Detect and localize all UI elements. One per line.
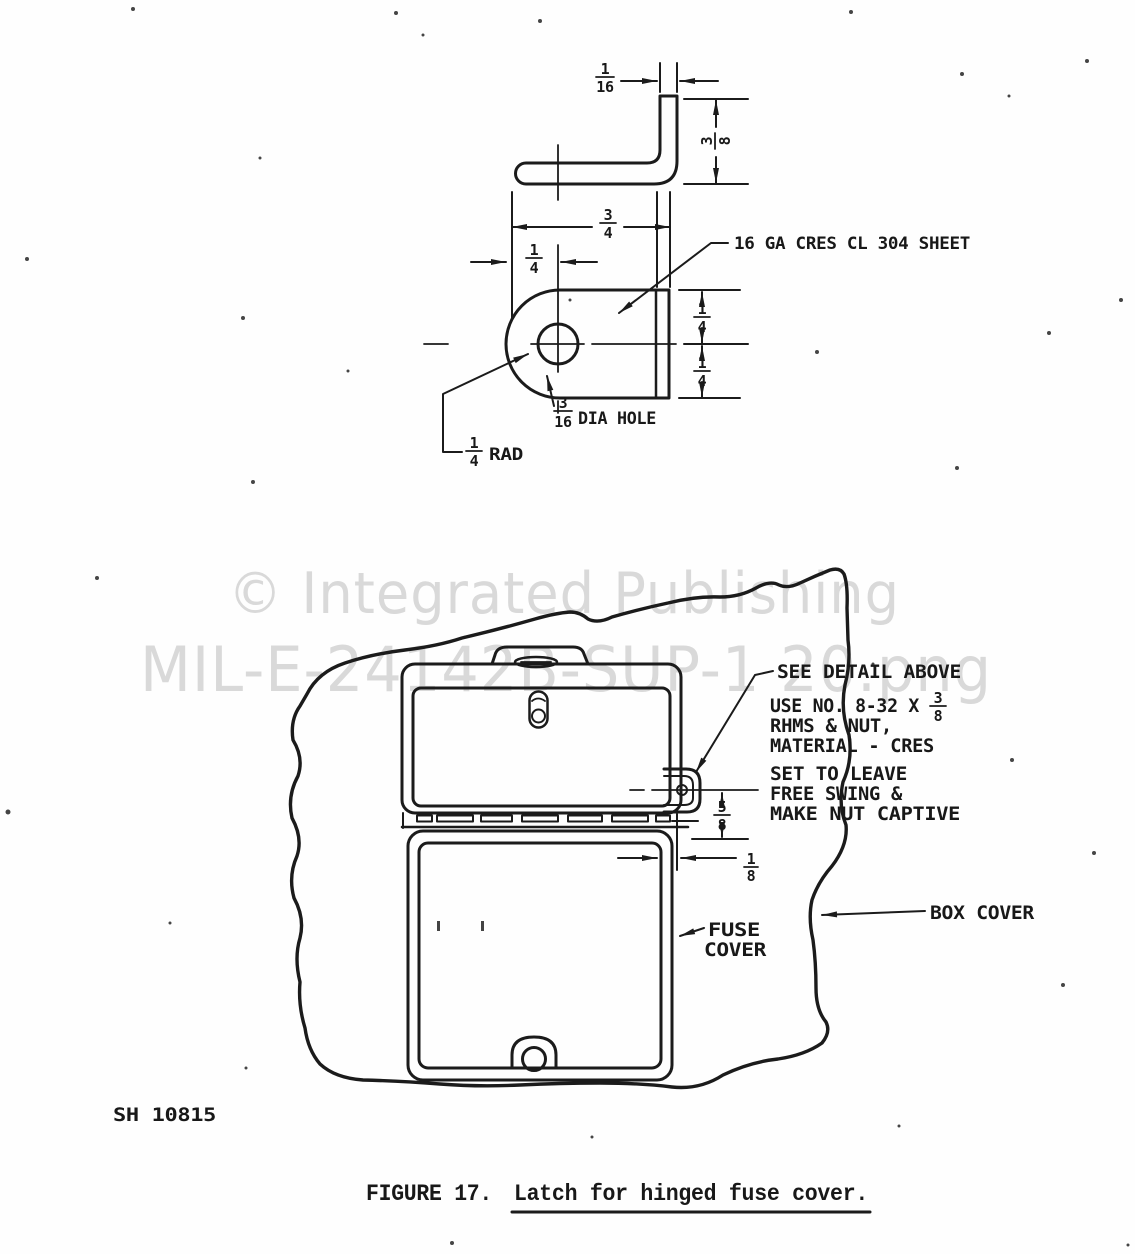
dim-leg-height-den: 8 <box>716 136 734 145</box>
radius-num: 1 <box>470 434 479 452</box>
box-cover-callout: BOX COVER <box>822 902 1035 924</box>
hole-callout: 3 16 DIA HOLE <box>547 376 656 431</box>
dim-hole-offset-num: 1 <box>530 241 539 259</box>
setting-note-line1: SET TO LEAVE <box>770 763 907 785</box>
radius-callout: 1 4 RAD <box>443 354 528 470</box>
fuse-cover-lower-frame <box>408 831 672 1080</box>
bottom-tab <box>512 1037 556 1071</box>
figure-17-drawing: © Integrated Publishing MIL-E-24142B-SUP… <box>0 0 1135 1254</box>
latch-detail-view: 1 16 3 8 3 4 <box>424 60 970 470</box>
fuse-cover-label-line1: FUSE <box>708 919 760 941</box>
dim-lower-half-den: 4 <box>698 372 707 390</box>
dim-width-num: 3 <box>604 206 613 224</box>
latch-side-profile <box>516 96 678 184</box>
dim-edge-gap-num: 1 <box>747 850 756 868</box>
dim-thickness: 1 16 <box>596 60 718 96</box>
hole-dim-den: 16 <box>554 413 572 431</box>
fuse-cover-lower-door <box>419 843 661 1068</box>
dim-hole-offset: 1 4 <box>471 241 597 277</box>
dim-lower-half: 1 4 <box>694 346 710 397</box>
scanned-spec-page: © Integrated Publishing MIL-E-24142B-SUP… <box>0 0 1135 1254</box>
hardware-note-line2: RHMS & NUT, <box>770 715 892 737</box>
figure-title: Latch for hinged fuse cover. <box>514 1181 868 1207</box>
sheet-number: SH 10815 <box>113 1104 216 1126</box>
dim-lower-half-num: 1 <box>698 354 707 372</box>
figure-label: FIGURE 17. <box>366 1181 492 1207</box>
dim-upper-half: 1 4 <box>679 290 748 398</box>
setting-note-line3: MAKE NUT CAPTIVE <box>770 803 960 825</box>
box-cover-label: BOX COVER <box>930 902 1035 924</box>
radius-den: 4 <box>470 452 479 470</box>
dim-upper-half-den: 4 <box>698 318 707 336</box>
fuse-cover-callout: FUSE COVER <box>680 919 767 961</box>
dim-latch-offset-num: 5 <box>718 798 727 816</box>
dim-hole-offset-den: 4 <box>530 259 539 277</box>
watermark: © Integrated Publishing MIL-E-24142B-SUP… <box>140 561 992 706</box>
hardware-fraction-num: 3 <box>934 689 943 707</box>
dim-width-den: 4 <box>604 224 613 242</box>
dim-thickness-den: 16 <box>596 78 614 96</box>
fuse-cover-label-line2: COVER <box>704 939 767 961</box>
hole-dim-num: 3 <box>559 394 568 412</box>
hardware-note-line1: USE NO. 8-32 X <box>770 695 920 717</box>
dim-latch-offset-den: 8 <box>718 816 727 834</box>
hardware-fraction-den: 8 <box>934 707 943 725</box>
latch-bracket <box>630 769 758 870</box>
dim-leg-height-num: 3 <box>698 136 716 145</box>
dim-upper-half-num: 1 <box>698 300 707 318</box>
see-detail-note: SEE DETAIL ABOVE <box>777 661 961 683</box>
footer: SH 10815 FIGURE 17. Latch for hinged fus… <box>113 1104 870 1212</box>
material-callout: 16 GA CRES CL 304 SHEET <box>619 234 970 313</box>
dim-thickness-num: 1 <box>601 60 610 78</box>
material-note: 16 GA CRES CL 304 SHEET <box>734 234 970 254</box>
hardware-note-line3: MATERIAL - CRES <box>770 735 934 757</box>
hole-dim-label: DIA HOLE <box>578 409 656 429</box>
dim-edge-gap: 1 8 <box>618 850 758 885</box>
hinge-strip <box>402 813 698 828</box>
dim-edge-gap-den: 8 <box>747 867 756 885</box>
watermark-line1: © Integrated Publishing <box>228 561 900 627</box>
setting-note-line2: FREE SWING & <box>770 783 903 805</box>
dim-leg-height: 3 8 <box>684 99 748 184</box>
radius-label: RAD <box>489 445 523 465</box>
